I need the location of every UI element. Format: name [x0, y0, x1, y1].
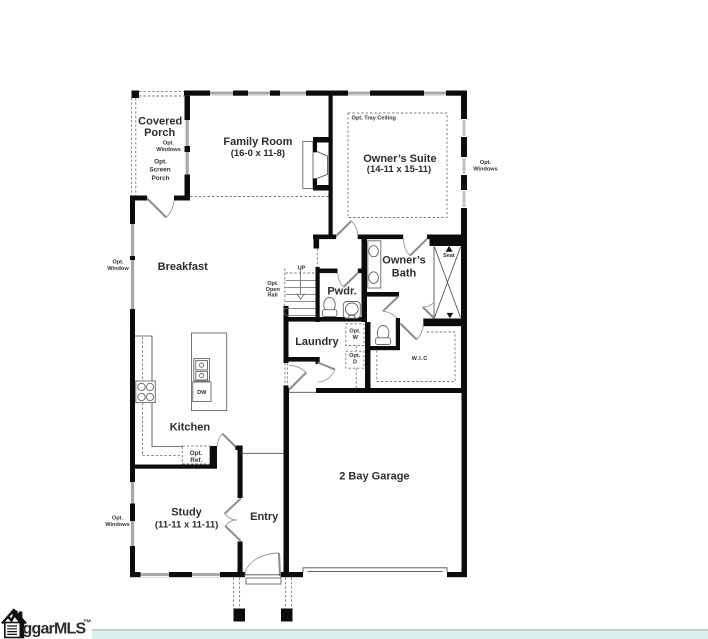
svg-text:Screen: Screen	[149, 167, 170, 174]
svg-text:W.I.C: W.I.C	[412, 356, 428, 362]
svg-text:(16-0 x 11-8): (16-0 x 11-8)	[231, 148, 285, 159]
svg-text:Windows: Windows	[105, 522, 130, 528]
svg-text:Family Room: Family Room	[223, 136, 292, 148]
svg-text:DW: DW	[197, 390, 207, 396]
svg-text:Windows: Windows	[156, 147, 181, 153]
svg-text:Pwdr.: Pwdr.	[327, 285, 356, 297]
svg-text:D: D	[353, 359, 357, 365]
svg-text:Owner’s: Owner’s	[382, 255, 425, 267]
svg-text:Window: Window	[107, 266, 129, 272]
svg-text:Covered: Covered	[138, 116, 182, 128]
svg-text:Seat: Seat	[443, 253, 455, 259]
svg-text:Porch: Porch	[151, 175, 169, 182]
svg-text:Opt.: Opt.	[349, 353, 361, 359]
svg-text:Windows: Windows	[473, 166, 498, 172]
svg-text:Opt.: Opt.	[163, 141, 175, 147]
svg-text:(14-11 x 15-11): (14-11 x 15-11)	[367, 164, 431, 175]
svg-text:Opt.: Opt.	[154, 158, 167, 165]
svg-text:Opt.: Opt.	[112, 515, 124, 521]
svg-text:Kitchen: Kitchen	[170, 422, 211, 434]
svg-text:Study: Study	[171, 506, 202, 518]
svg-text:Entry: Entry	[250, 511, 279, 523]
svg-text:Opt. Tray Ceiling: Opt. Tray Ceiling	[352, 116, 397, 122]
svg-text:™: ™	[83, 618, 92, 628]
svg-text:(11-11 x 11-11): (11-11 x 11-11)	[155, 519, 218, 530]
svg-text:Bath: Bath	[392, 267, 417, 279]
svg-text:Owner’s Suite: Owner’s Suite	[363, 153, 436, 165]
svg-text:Rail: Rail	[267, 293, 278, 299]
svg-text:Ref.: Ref.	[190, 457, 202, 464]
svg-text:Laundry: Laundry	[295, 336, 339, 348]
svg-text:Breakfast: Breakfast	[158, 261, 208, 273]
svg-text:2 Bay Garage: 2 Bay Garage	[339, 471, 409, 483]
svg-text:Porch: Porch	[144, 127, 175, 139]
svg-text:ggarMLS: ggarMLS	[23, 621, 87, 638]
svg-text:W: W	[353, 335, 359, 341]
svg-text:Opt.: Opt.	[112, 260, 124, 266]
svg-text:UP: UP	[298, 265, 306, 271]
svg-text:Opt.: Opt.	[349, 329, 361, 335]
svg-text:Opt.: Opt.	[480, 160, 492, 166]
